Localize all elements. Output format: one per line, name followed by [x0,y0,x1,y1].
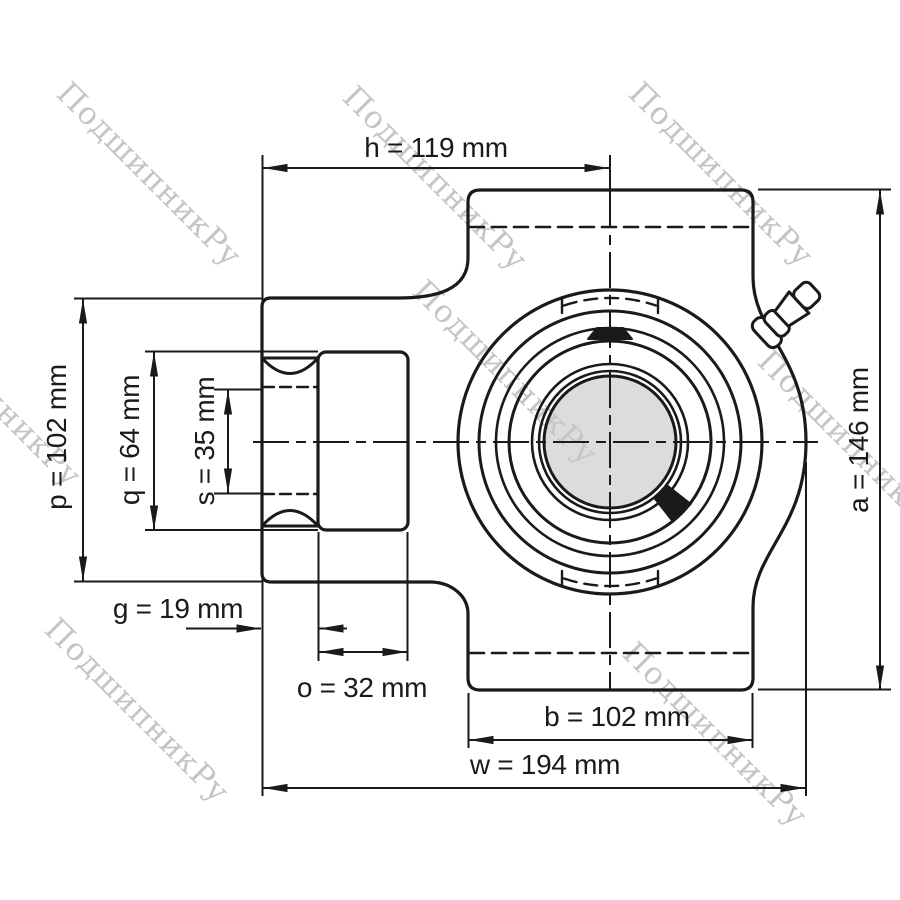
bearing-body-outline [262,190,826,690]
watermark-text: ПодшипникРу [750,343,900,542]
watermark-text: ПодшипникРу [49,75,248,274]
technical-drawing-canvas: ПодшипникРу ПодшипникРу ПодшипникРу Подш… [0,0,900,900]
watermark-text: ПодшипникРу [335,79,534,278]
dim-label-b: b = 102 mm [544,701,690,732]
watermark-text: ПодшипникРу [621,75,820,274]
dim-label-p: p = 102 mm [41,364,72,510]
dim-label-o: o = 32 mm [297,672,427,703]
watermark-text: ПодшипникРу [615,635,814,834]
watermark-text: ПодшипникРу [37,611,236,810]
dim-label-s: s = 35 mm [189,377,220,506]
dim-label-w: w = 194 mm [469,749,620,780]
dim-label-a: a = 146 mm [843,367,874,513]
dim-label-g: g = 19 mm [113,593,243,624]
set-screw-collar-icon [654,485,691,522]
bearing-unit-drawing: ПодшипникРу ПодшипникРу ПодшипникРу Подш… [0,0,900,900]
dim-label-h: h = 119 mm [364,132,508,163]
dim-label-q: q = 64 mm [114,375,145,505]
